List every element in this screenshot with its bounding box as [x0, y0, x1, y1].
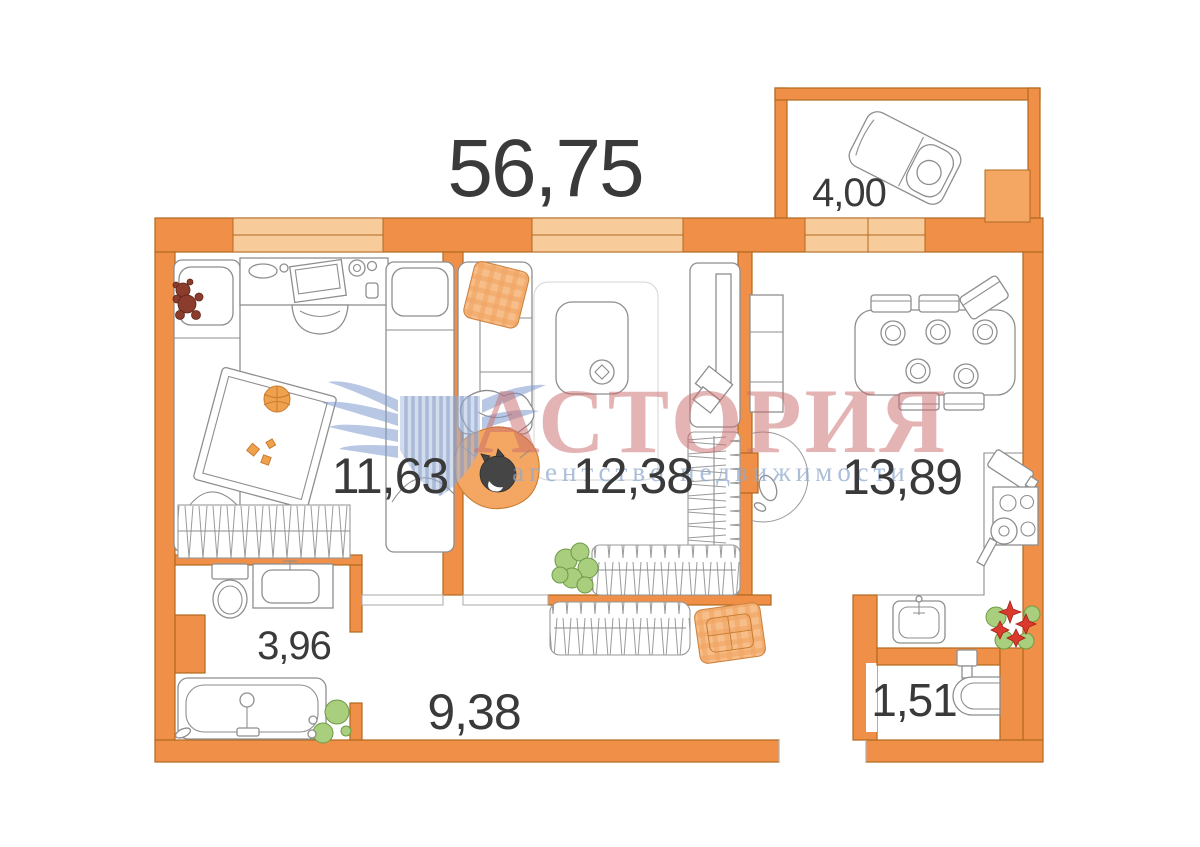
vanity-sink — [262, 570, 319, 603]
hallway-furniture — [550, 602, 766, 665]
wc-area-label: 1,51 — [871, 674, 957, 726]
balcony-storage-box — [985, 170, 1030, 222]
wc-toilet-tank — [957, 650, 977, 666]
desk-plate — [349, 260, 365, 276]
bathtub — [178, 678, 326, 739]
wall-bathroom-shaft — [175, 615, 205, 673]
bedroom-doorway — [362, 595, 443, 605]
wall-bathroom-right-upper — [350, 565, 362, 632]
living-doorway — [463, 595, 548, 605]
hallway-area-label: 9,38 — [427, 684, 520, 740]
wall-bottom-left — [155, 740, 779, 762]
wall-bottom-right — [866, 740, 1043, 762]
balcony-wall-top — [775, 88, 1040, 100]
windows — [233, 218, 925, 252]
basketball-icon — [264, 386, 290, 412]
bedroom-area-label: 11,63 — [332, 448, 448, 504]
total-area-label: 56,75 — [447, 123, 642, 214]
desk-tray — [249, 264, 277, 278]
wall-bathroom-right-lower — [350, 703, 362, 740]
wall-left — [155, 252, 175, 740]
tv-screen — [716, 274, 731, 384]
balcony-area-label: 4,00 — [812, 171, 886, 215]
wall-wc-top — [877, 648, 1000, 665]
kitchen-area-label: 13,89 — [842, 449, 962, 505]
balcony-wall-left — [775, 88, 787, 218]
kitchen-sink — [893, 596, 945, 643]
floor-plan-drawing: АСТОРИЯ агентство недвижимости 56,75 11,… — [0, 0, 1200, 847]
laptop — [290, 260, 347, 303]
bed-right-pillow — [392, 268, 448, 316]
bathroom-area-label: 3,96 — [257, 624, 331, 668]
living-area-label: 12,38 — [573, 448, 693, 504]
floor-plan-page: АСТОРИЯ агентство недвижимости 56,75 11,… — [0, 0, 1200, 847]
ottoman-pouf — [694, 602, 767, 665]
toilet-tank — [212, 564, 248, 579]
desk-glass — [366, 283, 378, 298]
wall-wc-right — [1000, 648, 1023, 740]
